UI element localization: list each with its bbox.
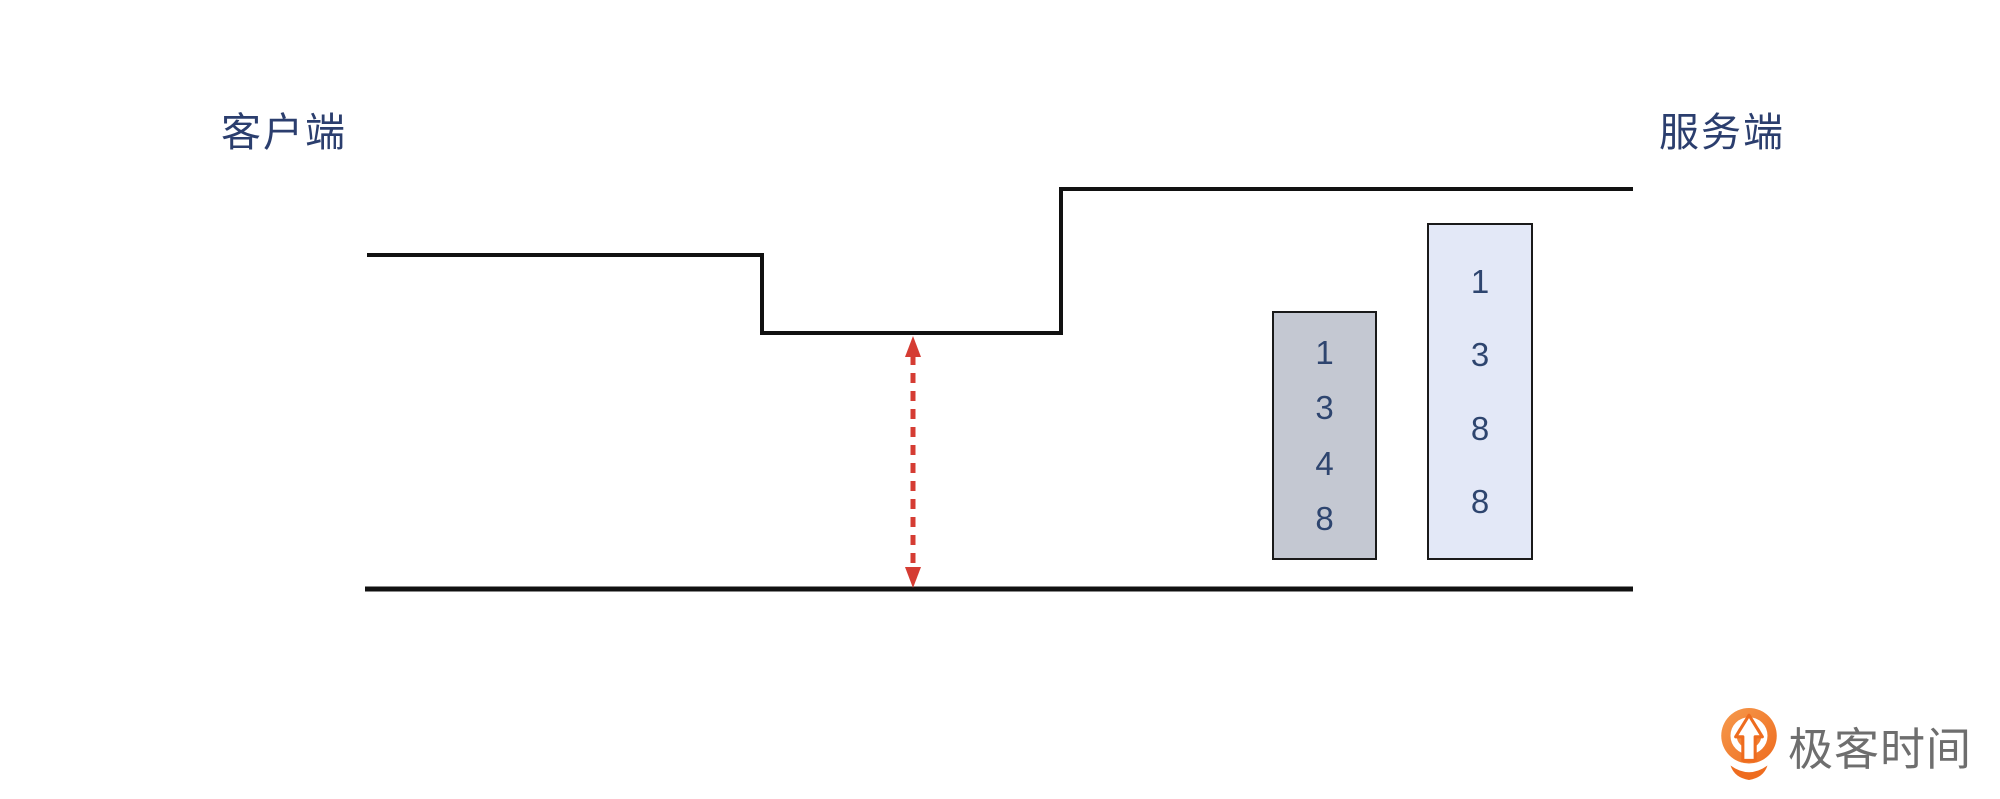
geektime-logo-icon: [1720, 708, 1778, 782]
box-digit: 8: [1471, 412, 1489, 445]
box-digit: 1: [1315, 336, 1333, 369]
box-digit: 3: [1471, 338, 1489, 371]
geektime-brand-text: 极客时间: [1788, 713, 1972, 778]
box-digit: 4: [1315, 447, 1333, 480]
sequence-box-1348: 1 3 4 8: [1272, 311, 1377, 560]
box-digit: 1: [1471, 265, 1489, 298]
box-digit: 8: [1315, 502, 1333, 535]
geektime-brand: 极客时间: [1720, 708, 1972, 782]
box-digit: 3: [1315, 391, 1333, 424]
gap-double-arrow-icon: [898, 336, 928, 588]
box-digit: 8: [1471, 485, 1489, 518]
arrow-head-up: [905, 336, 921, 357]
arrow-head-down: [905, 567, 921, 588]
diagram-canvas: 客户端 服务端 1 3 4 8 1 3 8 8: [0, 0, 2000, 799]
step-lines-layer: [0, 0, 2000, 799]
sequence-box-1388: 1 3 8 8: [1427, 223, 1533, 560]
